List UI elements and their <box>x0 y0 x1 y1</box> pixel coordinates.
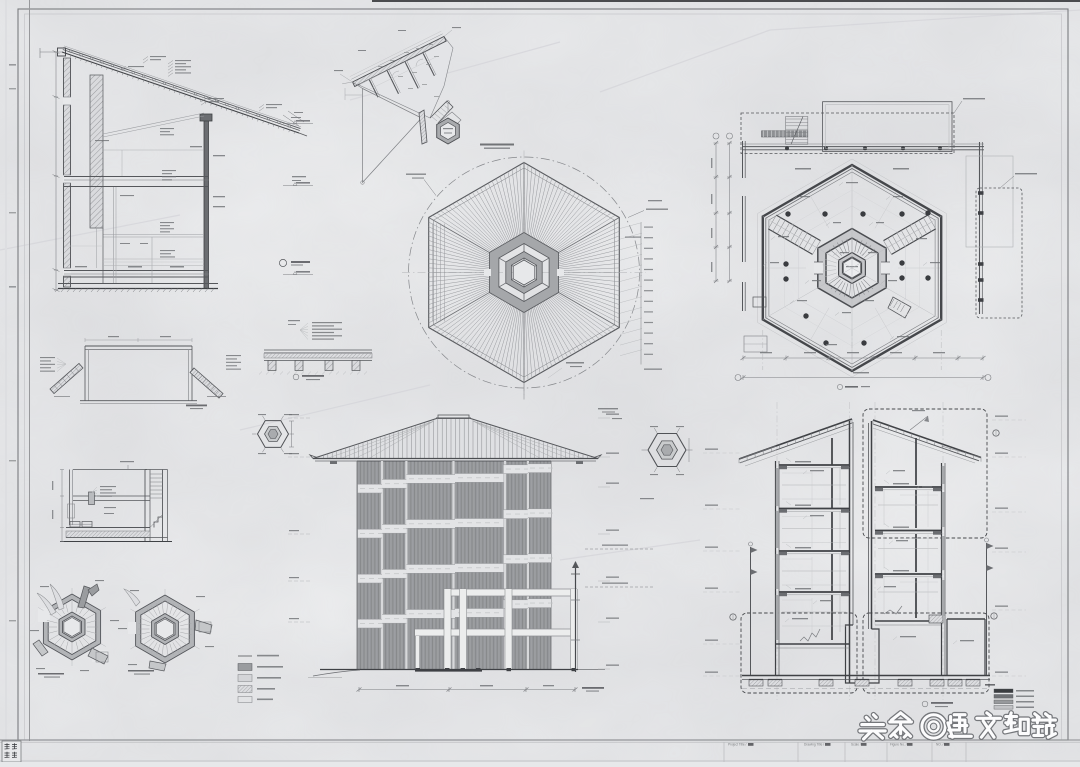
svg-text:Scale /: Scale / <box>851 743 861 747</box>
svg-text:NO. /: NO. / <box>936 743 944 747</box>
svg-text:Project Title /: Project Title / <box>728 743 747 747</box>
svg-text:Figure No. /: Figure No. / <box>890 743 907 747</box>
svg-text:Drawing Title /: Drawing Title / <box>804 743 824 747</box>
